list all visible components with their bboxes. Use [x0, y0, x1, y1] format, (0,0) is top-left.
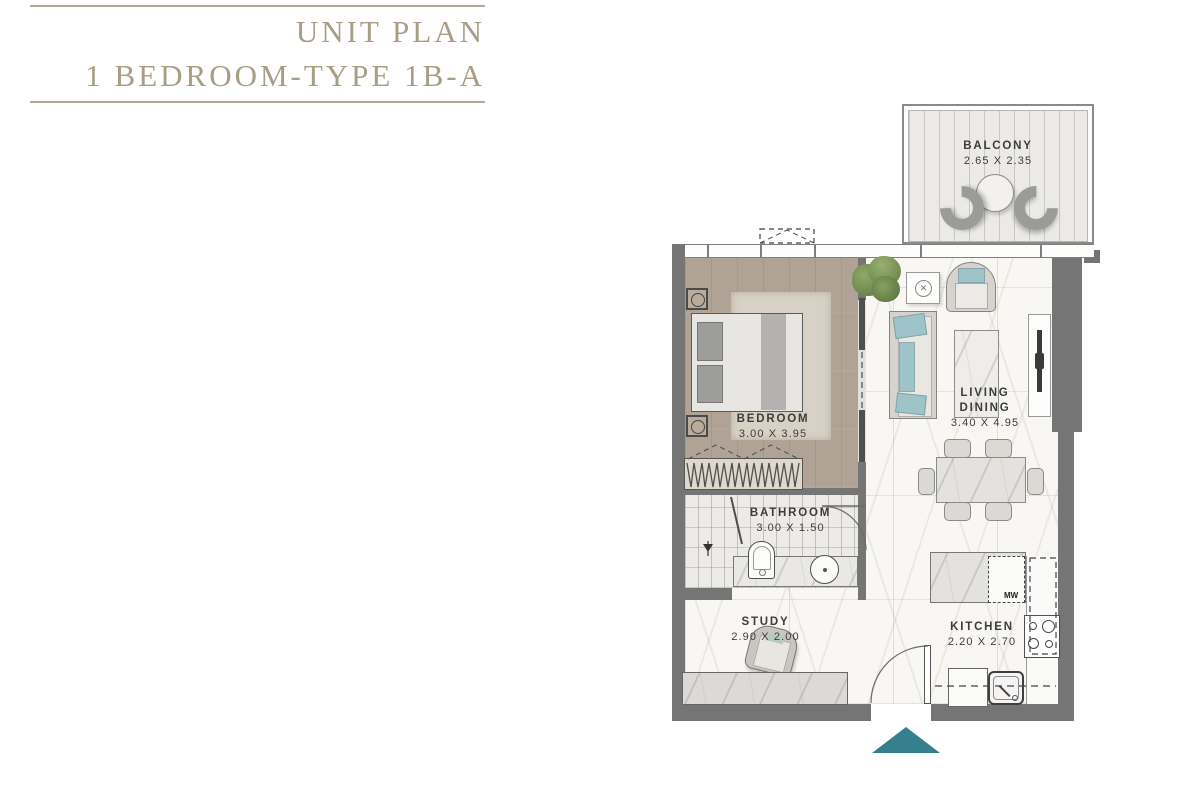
window-mullion [707, 244, 709, 258]
kitchen-dims: 2.20 X 2.70 [922, 635, 1042, 650]
window-mullion [1040, 244, 1042, 258]
toilet-flush-icon [759, 569, 766, 576]
window-mullion [760, 244, 762, 258]
bed-blanket [761, 314, 786, 410]
dining-chair [918, 468, 935, 495]
armchair-cushion [958, 268, 985, 283]
sink-drain-icon [1012, 695, 1018, 701]
ac-unit-diagonal [787, 230, 814, 243]
kitchen-sink [988, 671, 1024, 705]
wall-bathroom-study [672, 588, 732, 600]
kitchen-label: KITCHEN 2.20 X 2.70 [922, 620, 1042, 650]
living-name-line2: DINING [915, 401, 1055, 416]
wall-bottom-left [672, 704, 871, 721]
entrance-arrow-icon [872, 727, 940, 753]
wall-bathroom-right [858, 488, 866, 600]
nightstand-bottom [686, 415, 708, 437]
study-name: STUDY [698, 615, 833, 630]
wardrobe [684, 458, 803, 490]
sofa-pillow [893, 313, 928, 339]
dining-chair [985, 439, 1012, 458]
burner-icon [1045, 640, 1053, 648]
lamp-icon [691, 293, 705, 307]
page-title-line1: UNIT PLAN [30, 10, 485, 54]
dining-chair [1027, 468, 1044, 495]
page-title: UNIT PLAN 1 BEDROOM-TYPE 1B-A [30, 10, 485, 98]
side-table-ornament-icon: ✕ [915, 280, 932, 297]
dining-chair [944, 502, 971, 521]
wall-right-upper [1052, 258, 1082, 432]
tv-icon [1035, 353, 1044, 369]
bed-pillow [697, 365, 723, 403]
title-rule-bottom [30, 101, 485, 103]
side-table: ✕ [906, 272, 940, 304]
window-mullion [920, 244, 922, 258]
balcony-dims: 2.65 X 2.35 [930, 154, 1066, 169]
dining-chair [944, 439, 971, 458]
sink-drain-icon [823, 568, 827, 572]
unit-plan-page: UNIT PLAN 1 BEDROOM-TYPE 1B-A BALCONY 2.… [0, 0, 1200, 800]
bathroom-sink [810, 555, 839, 584]
bathroom-name: BATHROOM [733, 506, 848, 521]
plant-icon [852, 256, 906, 306]
ac-unit-diagonal [760, 230, 787, 243]
toilet-bowl [753, 546, 771, 570]
dining-table [936, 457, 1026, 503]
armchair [946, 262, 996, 312]
window-mullion [814, 244, 816, 258]
page-title-line2: 1 BEDROOM-TYPE 1B-A [30, 54, 485, 98]
entrance-door-leaf [924, 645, 931, 704]
bed [691, 313, 803, 412]
study-dims: 2.90 X 2.00 [698, 630, 833, 645]
bedroom-label: BEDROOM 3.00 X 3.95 [713, 412, 833, 442]
sofa-throw [899, 342, 915, 392]
lamp-icon [691, 420, 705, 434]
dining-chair [985, 502, 1012, 521]
microwave-label: MW [1004, 591, 1018, 600]
plant-foliage [872, 276, 900, 302]
living-dims: 3.40 X 4.95 [915, 416, 1055, 431]
study-desk [682, 672, 848, 705]
kitchen-name: KITCHEN [922, 620, 1042, 635]
title-rule-top [30, 5, 485, 7]
bedroom-dims: 3.00 X 3.95 [713, 427, 833, 442]
bathroom-label: BATHROOM 3.00 X 1.50 [733, 506, 848, 536]
bathroom-dims: 3.00 X 1.50 [733, 521, 848, 536]
wall-right-lower [1058, 432, 1074, 721]
bedroom-partition-bottom [858, 462, 866, 488]
burner-icon [1042, 620, 1055, 633]
sliding-door-panel-lower [859, 410, 865, 462]
bedroom-name: BEDROOM [713, 412, 833, 427]
living-dining-label: LIVING DINING 3.40 X 4.95 [915, 386, 1055, 431]
balcony-name: BALCONY [930, 139, 1066, 154]
kitchen-cabinet [948, 668, 988, 707]
living-window [902, 244, 1094, 258]
study-label: STUDY 2.90 X 2.00 [698, 615, 833, 645]
ac-unit-dashed-box [760, 229, 814, 243]
balcony-label: BALCONY 2.65 X 2.35 [930, 139, 1066, 169]
bed-pillow [697, 322, 723, 361]
living-name-line1: LIVING [915, 386, 1055, 401]
nightstand-top [686, 288, 708, 310]
armchair-seat [955, 283, 988, 309]
toilet [748, 541, 775, 579]
